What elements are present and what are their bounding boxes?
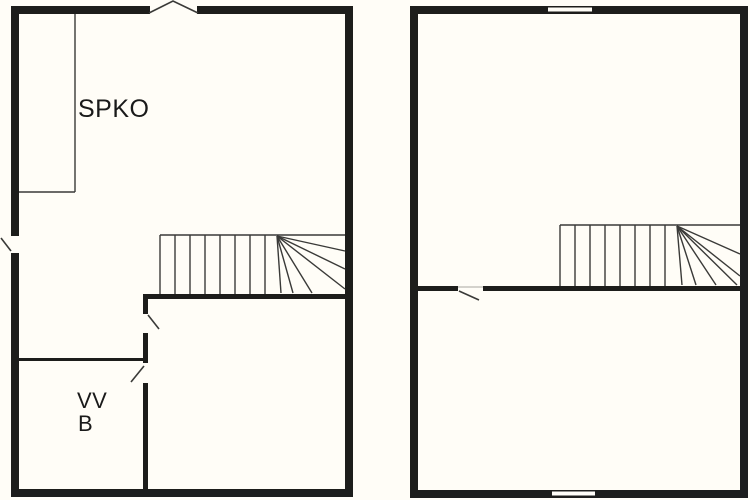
entry-door-swing-icon [1, 238, 11, 251]
window-icon-top [548, 8, 592, 12]
interior-door-swing-icon [131, 366, 144, 382]
right-floor-plan [410, 6, 748, 498]
interior-wall-left-segment [418, 286, 458, 291]
outer-wall-left-lower-segment [11, 253, 19, 497]
interior-door-swing-icon [459, 291, 479, 300]
outer-wall-right [740, 6, 748, 498]
interior-wall-right-segment [483, 286, 740, 291]
outer-wall-bottom [11, 489, 353, 497]
interior-wall-vertical-segment [143, 294, 148, 314]
outer-wall-left [410, 6, 418, 498]
room-label-b: B [78, 411, 93, 436]
top-opening-chevron-icon [149, 1, 198, 13]
outer-wall-top-right-segment [197, 6, 353, 14]
staircase-winder [160, 235, 345, 294]
floorplan-canvas: SPKO VV B [0, 0, 750, 500]
outer-wall-left-upper-segment [11, 6, 19, 236]
outer-wall-top-left-segment [11, 6, 150, 14]
staircase-winder [560, 225, 740, 286]
room-label-vv: VV [77, 388, 107, 413]
outer-wall-right [345, 6, 353, 497]
interior-door-swing-icon [148, 315, 159, 329]
interior-wall-horizontal [143, 294, 345, 299]
window-icon-bottom [552, 492, 595, 496]
floorplans-svg: SPKO VV B [0, 0, 750, 500]
room-label-spko: SPKO [78, 95, 149, 123]
stair-winder-line [677, 226, 740, 276]
room-partition-horizontal [19, 358, 143, 361]
interior-wall-vertical-segment [143, 383, 148, 489]
interior-wall-vertical-segment [143, 333, 148, 363]
left-floor-plan: SPKO VV B [1, 1, 353, 497]
